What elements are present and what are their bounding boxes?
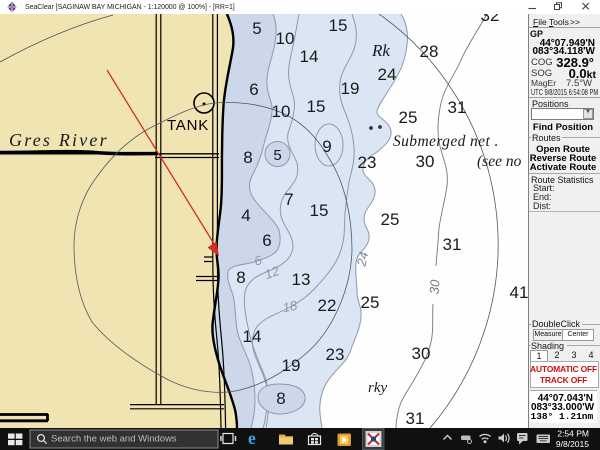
svg-text:10: 10 — [276, 29, 295, 48]
svg-text:6: 6 — [262, 231, 271, 250]
svg-text:32: 32 — [481, 14, 500, 25]
svg-text:30: 30 — [412, 344, 431, 363]
svg-text:25: 25 — [381, 210, 400, 229]
svg-text:rky: rky — [368, 380, 387, 396]
svg-text:28: 28 — [420, 42, 439, 61]
svg-text:9: 9 — [322, 137, 331, 156]
svg-text:25: 25 — [361, 293, 380, 312]
svg-text:e: e — [248, 428, 256, 448]
svg-text:14: 14 — [243, 327, 262, 346]
svg-text:6: 6 — [249, 80, 258, 99]
svg-text:Submerged net .: Submerged net . — [393, 133, 499, 150]
svg-text:19: 19 — [282, 356, 301, 375]
svg-text:8: 8 — [276, 389, 285, 408]
svg-text:7: 7 — [284, 190, 293, 209]
svg-text:2:54 PM: 2:54 PM — [557, 429, 589, 439]
svg-text:31: 31 — [448, 98, 467, 117]
svg-text:41: 41 — [510, 283, 528, 302]
svg-text:10: 10 — [272, 102, 291, 121]
svg-text:Search the web and Windows: Search the web and Windows — [51, 434, 177, 445]
svg-text:24: 24 — [378, 65, 397, 84]
svg-text:8: 8 — [243, 148, 252, 167]
svg-text:5: 5 — [273, 147, 281, 164]
svg-text:Rk: Rk — [371, 41, 390, 60]
svg-text:23: 23 — [326, 345, 345, 364]
svg-text:30: 30 — [416, 152, 435, 171]
svg-text:15: 15 — [329, 16, 348, 35]
svg-text:4: 4 — [241, 206, 250, 225]
svg-text:5: 5 — [252, 19, 261, 38]
svg-text:13: 13 — [292, 270, 311, 289]
svg-text:14: 14 — [300, 47, 319, 66]
svg-text:19: 19 — [341, 79, 360, 98]
svg-text:22: 22 — [318, 296, 337, 315]
svg-text:TANK: TANK — [167, 117, 209, 134]
svg-text:31: 31 — [406, 409, 425, 428]
svg-text:(see no: (see no — [477, 153, 522, 170]
svg-text:23: 23 — [358, 153, 377, 172]
svg-text:Gres River: Gres River — [9, 130, 109, 150]
svg-text:15: 15 — [307, 97, 326, 116]
svg-text:24: 24 — [353, 250, 371, 268]
svg-text:31: 31 — [443, 235, 462, 254]
svg-text:25: 25 — [399, 108, 418, 127]
svg-text:9/8/2015: 9/8/2015 — [556, 439, 589, 449]
svg-text:8: 8 — [236, 268, 245, 287]
svg-text:30: 30 — [427, 278, 443, 294]
svg-text:15: 15 — [310, 201, 329, 220]
